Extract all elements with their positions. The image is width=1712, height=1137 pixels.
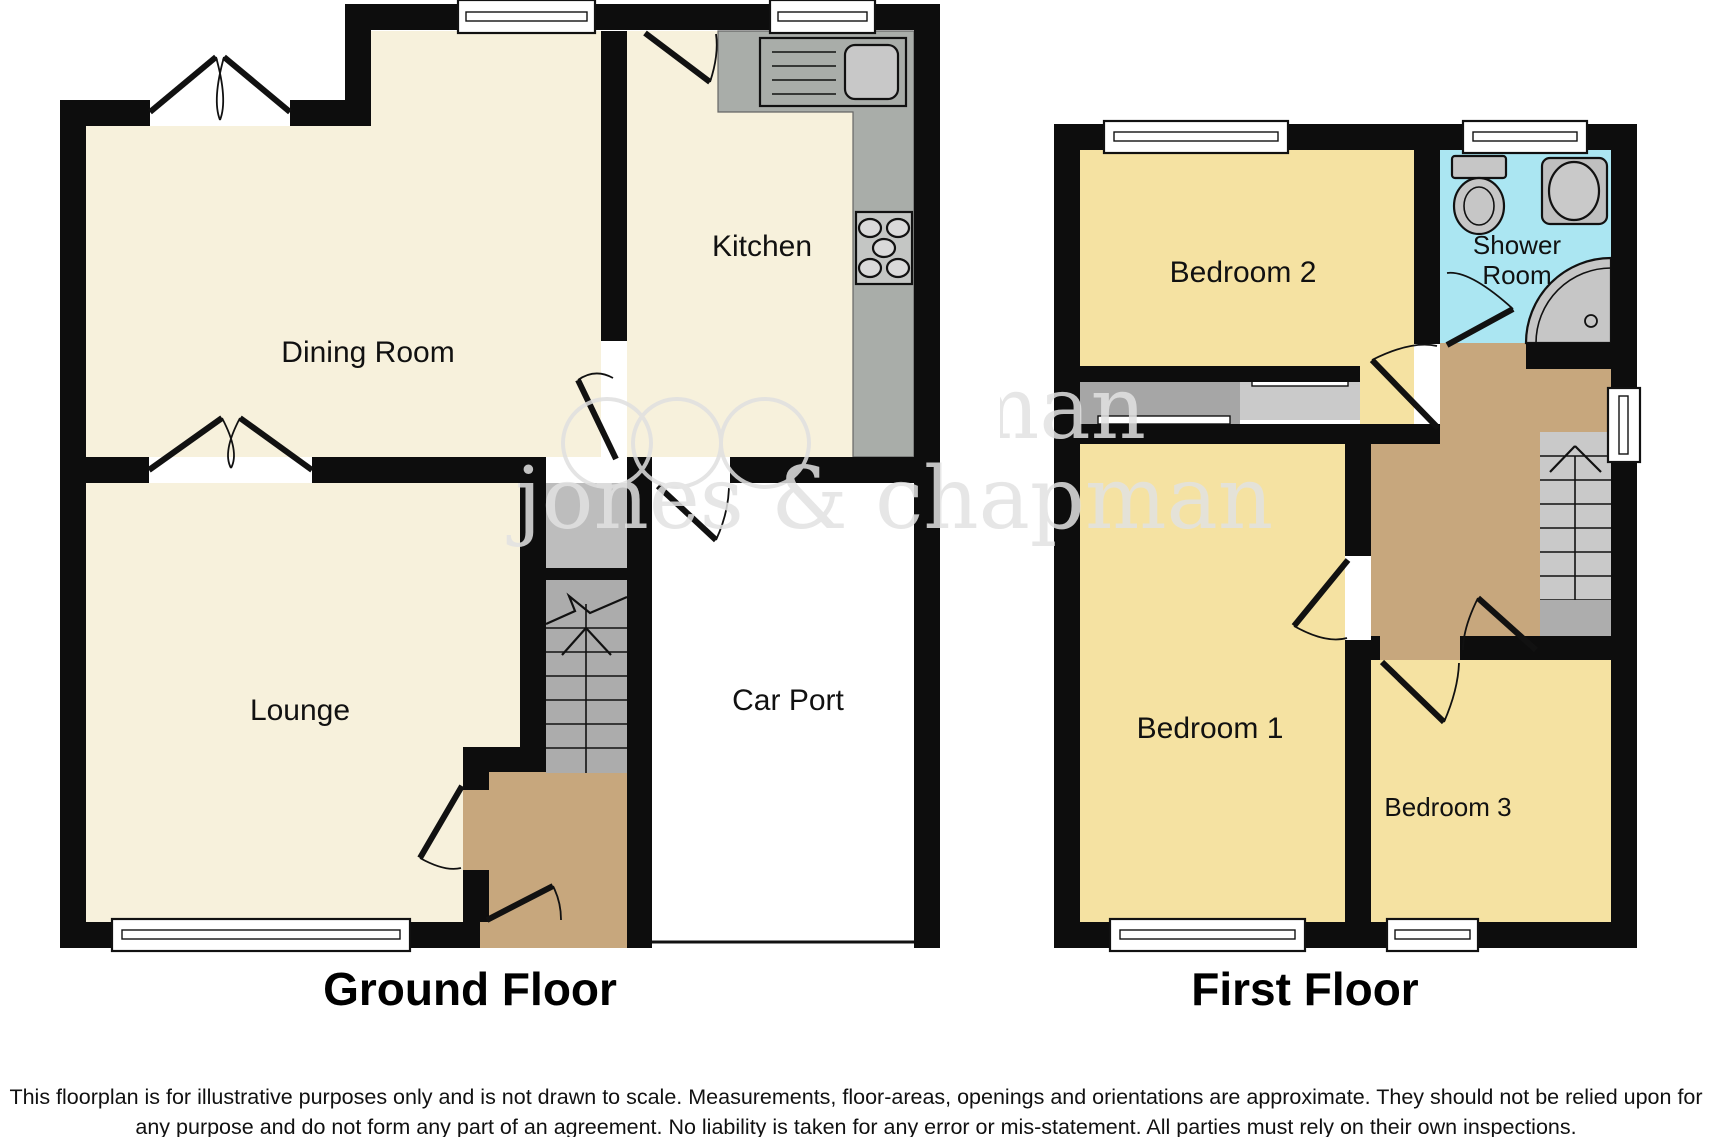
window — [112, 919, 410, 951]
window — [1104, 121, 1288, 153]
label-lounge: Lounge — [250, 694, 350, 727]
window — [1463, 121, 1587, 153]
hob-icon — [856, 212, 912, 284]
first-floor-plan: Bedroom 2 Bedroom 1 Bedroom 3 Shower Roo… — [1054, 121, 1640, 1015]
room-dining — [86, 31, 601, 457]
ground-floor-title: Ground Floor — [323, 963, 617, 1015]
window — [1608, 388, 1640, 462]
first-floor-title: First Floor — [1191, 963, 1419, 1015]
window — [1387, 919, 1478, 951]
toilet-icon — [1452, 156, 1506, 234]
room-bedroom-3 — [1371, 660, 1611, 922]
floorplan-drawing: Dining Room Kitchen Lounge Car Port Grou… — [0, 0, 1712, 1137]
staircase-first — [1540, 432, 1611, 640]
french-doors-dining — [150, 57, 290, 120]
window — [458, 0, 595, 33]
svg-text:Room: Room — [1482, 260, 1551, 290]
window — [770, 0, 875, 33]
wash-basin-icon — [1542, 158, 1607, 224]
label-bedroom-1: Bedroom 1 — [1137, 712, 1284, 745]
kitchen-sink-icon — [760, 38, 906, 106]
staircase-ground — [546, 580, 627, 773]
label-bedroom-3: Bedroom 3 — [1384, 792, 1511, 822]
label-dining-room: Dining Room — [281, 336, 454, 369]
label-bedroom-2: Bedroom 2 — [1170, 256, 1317, 289]
watermark-text: jones & chapman — [506, 449, 1273, 549]
svg-text:Shower: Shower — [1473, 230, 1561, 260]
disclaimer-text: This floorplan is for illustrative purpo… — [0, 1082, 1712, 1137]
floorplan-page: Dining Room Kitchen Lounge Car Port Grou… — [0, 0, 1712, 1137]
window — [1110, 919, 1305, 951]
label-shower-room: Shower Room — [1473, 230, 1561, 290]
stairs-platform — [1540, 600, 1611, 640]
label-kitchen: Kitchen — [712, 230, 812, 263]
label-car-port: Car Port — [732, 684, 844, 717]
